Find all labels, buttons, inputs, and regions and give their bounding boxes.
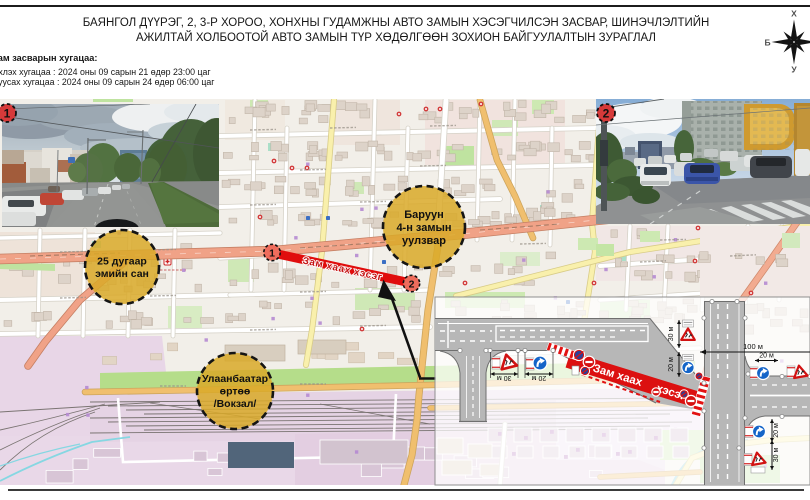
svg-text:2: 2 — [409, 278, 415, 290]
svg-text:өртөө: өртөө — [220, 386, 251, 398]
svg-text:20 м: 20 м — [773, 423, 780, 438]
svg-text:1: 1 — [269, 247, 275, 259]
svg-text:Х: Х — [791, 9, 797, 19]
svg-text:100 м: 100 м — [743, 342, 763, 351]
svg-text:/Вокзал/: /Вокзал/ — [214, 398, 257, 410]
svg-text:20 м: 20 м — [532, 374, 547, 381]
svg-text:30 м: 30 м — [773, 448, 780, 463]
svg-text:30 м: 30 м — [668, 327, 675, 342]
svg-text:20 м: 20 м — [668, 357, 675, 372]
svg-text:25 дугаар: 25 дугаар — [97, 255, 147, 267]
svg-text:У: У — [791, 65, 797, 75]
svg-text:эмийн сан: эмийн сан — [95, 268, 149, 280]
svg-text:30 м: 30 м — [497, 374, 512, 381]
svg-text:Баруун: Баруун — [404, 209, 443, 221]
svg-text:Улаанбаатар: Улаанбаатар — [202, 373, 268, 385]
svg-text:Б: Б — [764, 38, 770, 48]
svg-text:уулзвар: уулзвар — [402, 235, 446, 247]
svg-text:20 м: 20 м — [759, 353, 774, 360]
svg-text:1: 1 — [4, 107, 11, 121]
svg-text:4-н замын: 4-н замын — [396, 222, 451, 234]
svg-text:2: 2 — [603, 107, 610, 121]
